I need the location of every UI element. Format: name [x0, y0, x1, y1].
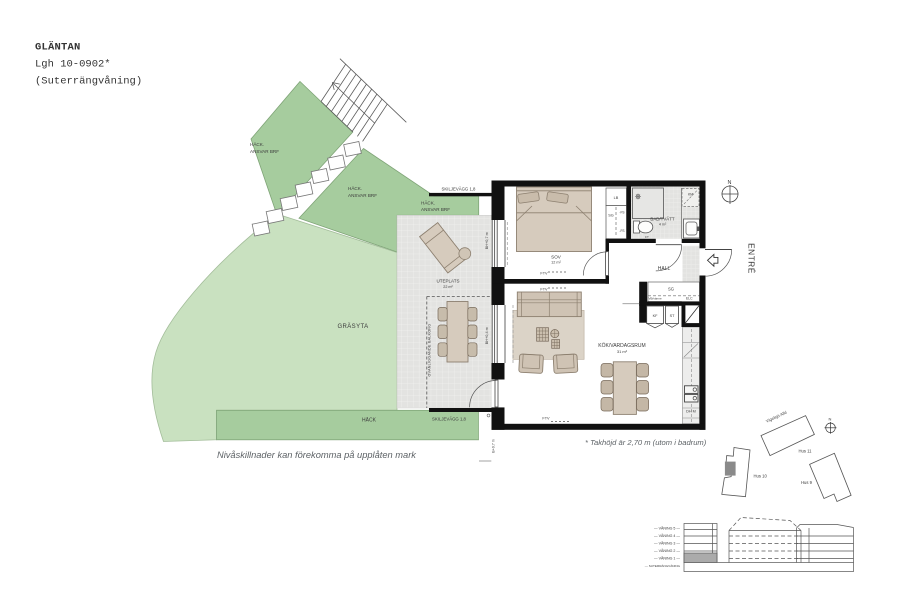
svg-text:SKILJEVÄGG 1,8: SKILJEVÄGG 1,8 [432, 417, 467, 422]
svg-text:BAD/TVÄTT: BAD/TVÄTT [650, 216, 674, 221]
svg-text:GLÄNTAN: GLÄNTAN [35, 41, 81, 54]
svg-text:OVANLIGGANDE BALKONG: OVANLIGGANDE BALKONG [428, 324, 432, 377]
svg-text:— VÅNING 2 —: — VÅNING 2 — [654, 548, 680, 553]
svg-text:GRÄSYTA: GRÄSYTA [337, 323, 368, 330]
svg-text:ANSVAR BRF: ANSVAR BRF [421, 207, 450, 212]
svg-text:DH M: DH M [686, 410, 696, 414]
svg-text:Hus 11: Hus 11 [799, 449, 813, 454]
svg-text:HÄCK.: HÄCK. [421, 200, 435, 206]
svg-text:UTEPLATS: UTEPLATS [437, 279, 460, 284]
svg-text:Lgh 10-0902*: Lgh 10-0902* [35, 59, 111, 71]
svg-text:ELC: ELC [686, 296, 693, 300]
svg-text:(Suterrängvåning): (Suterrängvåning) [35, 75, 142, 88]
svg-text:-FS: -FS [619, 211, 624, 215]
svg-text:-FS: -FS [619, 229, 624, 233]
svg-text:ENTRÉ: ENTRÉ [747, 243, 757, 274]
svg-text:B+0,7 m: B+0,7 m [492, 439, 496, 452]
svg-text:Hus 9: Hus 9 [801, 480, 813, 485]
svg-text:ST: ST [670, 314, 676, 318]
svg-text:KÖK/VARDAGSRUM: KÖK/VARDAGSRUM [598, 342, 645, 349]
svg-text:BH+0,7 m: BH+0,7 m [485, 232, 489, 249]
svg-text:— VÅNING 4 —: — VÅNING 4 — [654, 533, 680, 538]
svg-text:HÄCK.: HÄCK. [348, 185, 362, 191]
svg-text:31 m²: 31 m² [617, 349, 628, 354]
svg-text:FTV: FTV [540, 288, 548, 292]
svg-text:— VÅNING 5 —: — VÅNING 5 — [654, 526, 680, 531]
svg-text:— VÅNING 1 —: — VÅNING 1 — [654, 556, 680, 561]
svg-text:Vigelsjö Allé: Vigelsjö Allé [765, 409, 788, 423]
svg-text:SKILJEVÄGG 1,8: SKILJEVÄGG 1,8 [442, 187, 477, 192]
svg-text:BH+0,4 m: BH+0,4 m [485, 327, 489, 344]
svg-text:ANSVAR BRF: ANSVAR BRF [348, 193, 377, 198]
svg-text:VB/värme: VB/värme [649, 296, 663, 300]
svg-text:HALL: HALL [658, 266, 671, 272]
svg-text:12 m²: 12 m² [551, 261, 561, 265]
svg-text:KF: KF [653, 314, 659, 318]
svg-text:LB: LB [614, 196, 619, 200]
svg-text:ANSVAR BRF: ANSVAR BRF [250, 149, 279, 154]
svg-text:FT: FT [645, 235, 649, 239]
svg-text:SG: SG [608, 214, 614, 218]
svg-text:N: N [728, 180, 732, 186]
svg-text:KM: KM [688, 193, 693, 197]
svg-text:Nivåskillnader kan förekomma p: Nivåskillnader kan förekomma på upplåten… [217, 450, 417, 460]
svg-text:SG: SG [668, 287, 674, 292]
svg-text:— SUTERRÄNGVÅNING: — SUTERRÄNGVÅNING [645, 563, 681, 568]
svg-text:FTV: FTV [542, 417, 550, 421]
svg-text:— VÅNING 3 —: — VÅNING 3 — [654, 541, 680, 546]
svg-text:HÄCK: HÄCK [362, 417, 377, 424]
svg-text:Hus 10: Hus 10 [754, 474, 768, 479]
svg-text:FTV: FTV [540, 272, 548, 276]
svg-text:SOV: SOV [551, 255, 562, 260]
svg-text:HÄCK.: HÄCK. [250, 141, 264, 147]
svg-text:22 m²: 22 m² [443, 285, 453, 289]
svg-text:4 m²: 4 m² [659, 223, 667, 227]
svg-text:N: N [829, 417, 832, 422]
svg-text:* Takhöjd är 2,70 m (utom i ba: * Takhöjd är 2,70 m (utom i badrum) [585, 438, 707, 447]
